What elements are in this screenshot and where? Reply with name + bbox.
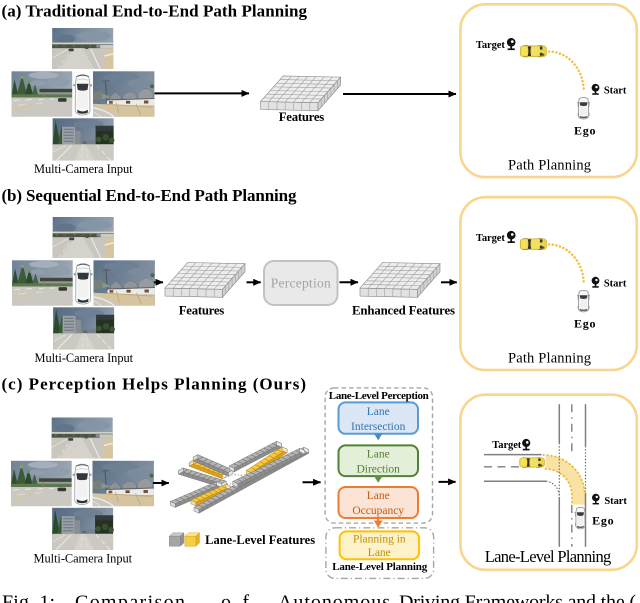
- svg-text:Ego: Ego: [592, 514, 614, 528]
- svg-text:Fig. 1:: Fig. 1:: [2, 592, 55, 603]
- svg-text:Target: Target: [492, 440, 522, 451]
- svg-text:(b) Sequential End-to-End Path: (b) Sequential End-to-End Path Planning: [2, 186, 298, 205]
- svg-text:Features: Features: [179, 303, 225, 317]
- svg-text:of: of: [221, 592, 249, 603]
- svg-text:Occupancy: Occupancy: [352, 505, 404, 517]
- svg-text:Planning in: Planning in: [353, 534, 406, 546]
- svg-text:Enhanced Features: Enhanced Features: [352, 303, 455, 317]
- svg-text:Lane-Level Features: Lane-Level Features: [205, 533, 315, 547]
- svg-text:Start: Start: [604, 496, 627, 507]
- svg-text:Lane-Level Perception: Lane-Level Perception: [329, 390, 429, 402]
- svg-text:(c) Perception Helps Planning: (c) Perception Helps Planning (Ours): [2, 375, 307, 394]
- svg-text:Comparison: Comparison: [75, 592, 185, 603]
- svg-text:(a) Traditional End-to-End Pat: (a) Traditional End-to-End Path Planning: [2, 1, 308, 20]
- svg-text:Lane: Lane: [367, 490, 390, 502]
- svg-text:Direction: Direction: [356, 464, 400, 476]
- svg-text:Lane-Level Planning: Lane-Level Planning: [485, 547, 612, 566]
- svg-text:Features: Features: [279, 110, 325, 124]
- svg-text:Driving Frameworks and the (: Driving Frameworks and the (: [399, 592, 636, 603]
- svg-text:Lane: Lane: [367, 406, 390, 418]
- svg-text:Lane-Level Planning: Lane-Level Planning: [332, 561, 428, 573]
- svg-text:Lane: Lane: [368, 547, 391, 559]
- svg-text:Perception: Perception: [271, 276, 331, 291]
- svg-text:Autonomous: Autonomous: [278, 592, 390, 603]
- svg-text:Lane: Lane: [367, 449, 390, 461]
- svg-text:Intersection: Intersection: [351, 421, 406, 433]
